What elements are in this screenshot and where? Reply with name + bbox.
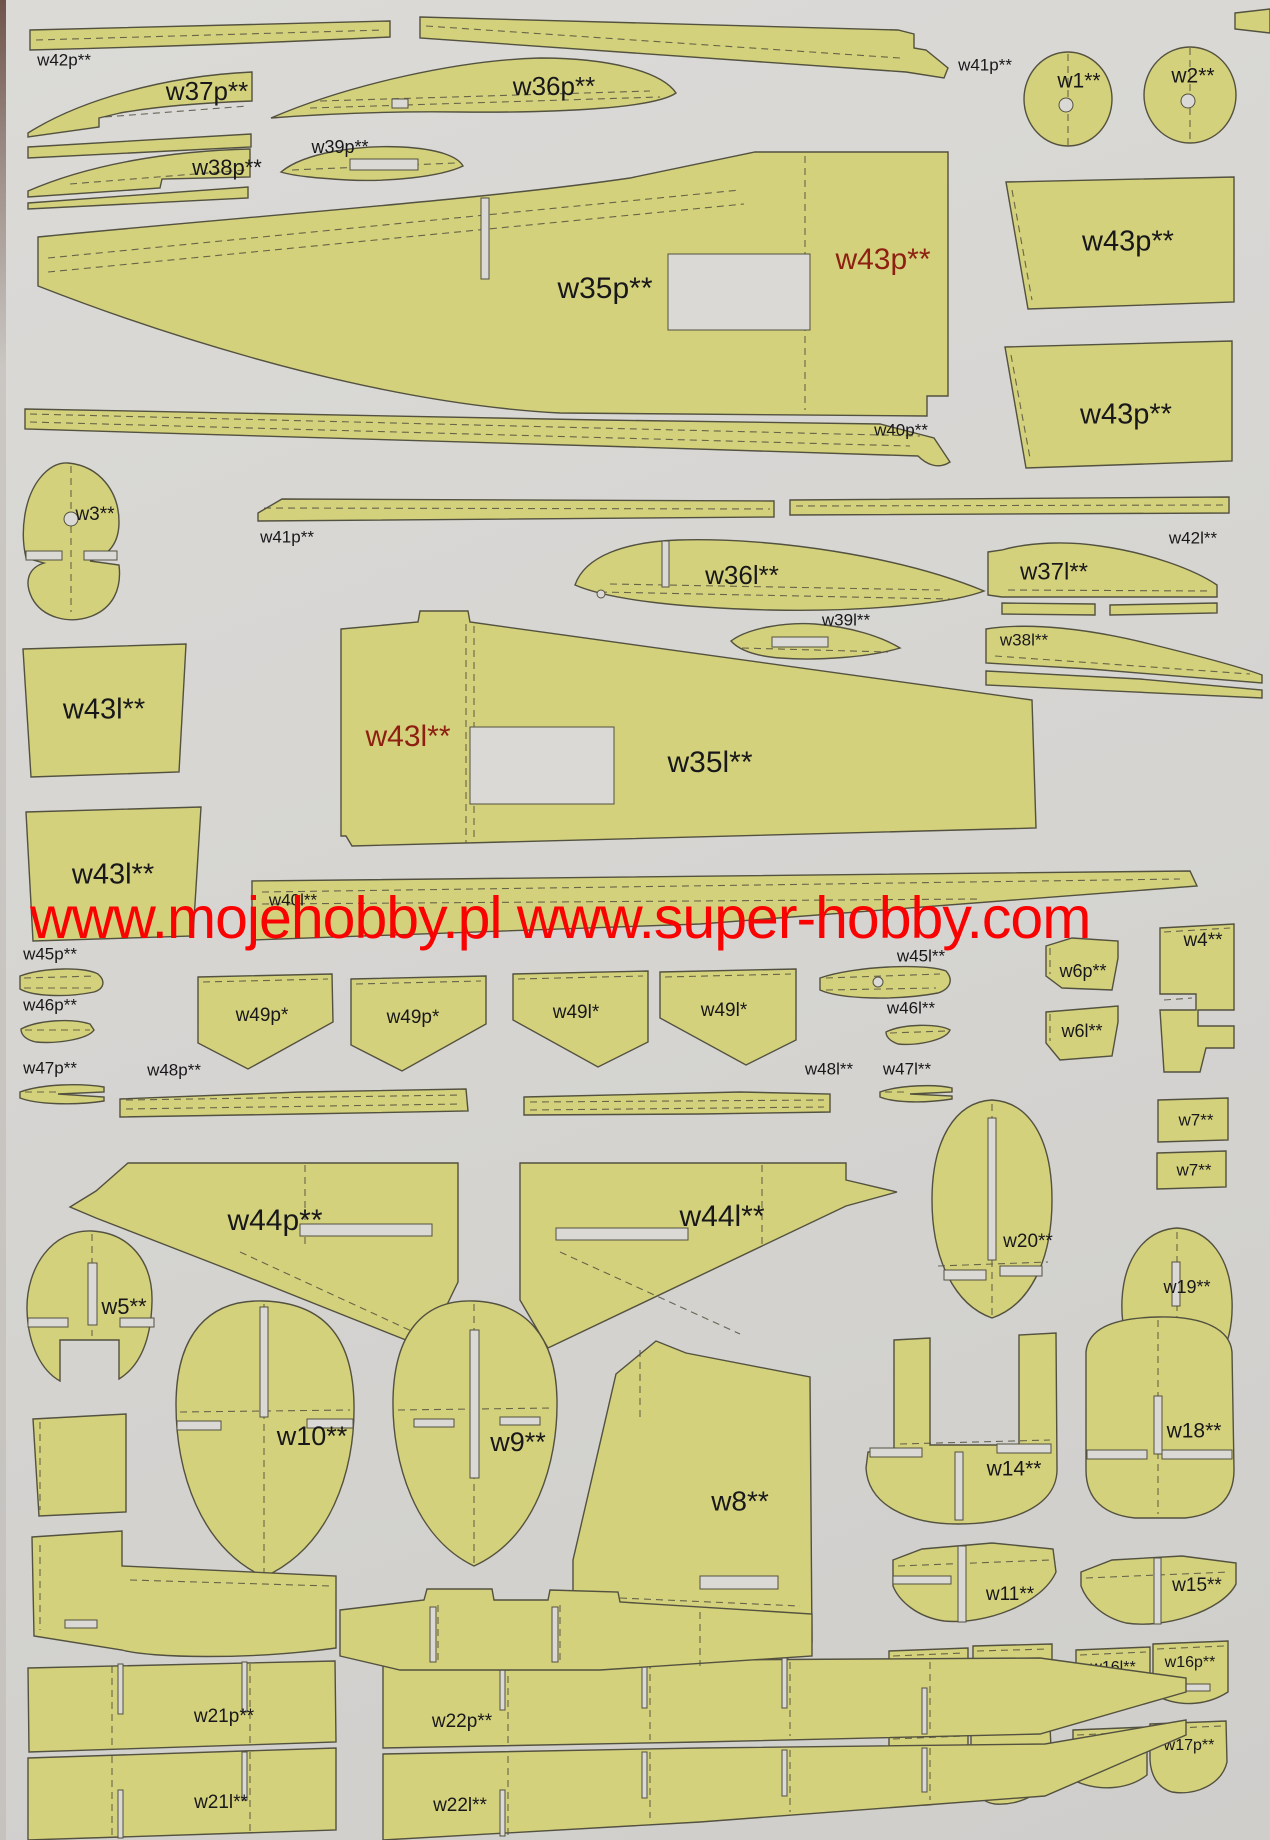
part-label-w49l-2: w49l* [700,1000,748,1021]
part-w2-disc: w2** [1144,47,1236,143]
part-label-w48p-strip: w48p** [146,1060,201,1079]
part-w46l-pod: w46l** [886,998,950,1044]
part-w39l-airfoil: w39l** [731,610,900,659]
part-w44l-wing: w44l** [520,1163,897,1348]
part-label-w47l-pod: w47l** [882,1059,932,1078]
part-w39p-airfoil: w39p** [281,137,463,181]
part-tail-plate [33,1414,126,1516]
part-label-w42l-strip: w42l** [1168,528,1218,547]
part-w48l-strip: w48l** [524,1059,853,1115]
part-label-w20-former: w20** [1002,1231,1053,1252]
part-label-w6p-plate: w6p** [1058,961,1106,981]
part-label-w21p-band: w21p** [193,1706,255,1727]
part-label-w43p-panel-1: w43p** [1081,226,1174,258]
part-w42l-strip: w42l** [790,497,1229,547]
part-w5-former: w5** [27,1231,154,1381]
part-w9-former: w9** [393,1301,557,1566]
part-w46p-pod: w46p** [21,995,94,1042]
part-w1-disc: w1** [1024,52,1112,146]
part-w6l-plate: w6l** [1046,1006,1118,1060]
part-label-w49l-1: w49l* [552,1002,600,1023]
part-label-w6l-plate: w6l** [1060,1021,1102,1041]
part-w36l-airfoil: w36l** [575,540,984,611]
watermark-text: www.mojehobby.pl www.super-hobby.com [30,884,1270,952]
part-w43l-red-label: w43l** [364,720,450,753]
part-w10-former: w10** [176,1301,354,1577]
part-label-w38p-airfoil: w38p** [191,155,262,180]
part-label-w35p-panel: w35p** [556,272,652,305]
part-w40p-strip: w40p** [25,409,950,466]
part-w45l-pod: w45l** [820,946,950,998]
part-label-w44p-wing: w44p** [226,1204,322,1237]
part-w49p-1: w49p* [198,974,333,1069]
part-label-w11-former: w11** [985,1584,1035,1605]
part-label-w49p-1: w49p* [235,1005,289,1026]
part-w47p-pod: w47p** [20,1058,104,1103]
part-w43p-panel-1: w43p** [1006,177,1234,309]
part-label-w40p-strip: w40p** [873,420,928,439]
part-label-w49p-2: w49p* [386,1007,440,1028]
part-label-w42p-strip: w42p** [36,50,91,69]
part-label-w15-former: w15** [1171,1575,1222,1596]
part-w37p-airfoil: w37p** [28,72,252,137]
part-label-w43l-red-label: w43l** [364,720,450,753]
scan-edge-shadow [0,0,6,1840]
part-w43p-panel-2: w43p** [1005,341,1232,468]
part-label-w43p-red-label: w43p** [834,243,930,276]
part-label-w38l-airfoil: w38l** [999,630,1049,649]
part-label-w44l-wing: w44l** [678,1200,764,1233]
part-label-w39l-airfoil: w39l** [821,610,871,629]
part-label-w46p-pod: w46p** [22,995,77,1014]
part-label-w10-former: w10** [276,1421,348,1451]
part-label-w37l-airfoil: w37l** [1019,558,1088,585]
part-w37l-strip-a [1002,603,1095,615]
part-label-w22l-band: w22l** [432,1795,487,1816]
part-label-w5-former: w5** [100,1294,147,1319]
part-label-w37p-airfoil: w37p** [165,76,248,106]
part-w49l-2: w49l* [660,969,796,1065]
part-w48p-strip: w48p** [120,1060,468,1117]
part-label-w2-disc: w2** [1170,65,1214,88]
part-label-w35l-panel: w35l** [666,746,752,779]
part-w7-plate-2: w7** [1157,1151,1226,1189]
part-label-w3-former: w3** [74,504,115,525]
part-w49l-1: w49l* [513,971,648,1067]
part-w15-former: w15** [1081,1556,1236,1624]
part-label-w9-former: w9** [489,1427,546,1457]
part-w3-former: w3** [23,463,119,620]
part-w7-plate-1: w7** [1158,1098,1228,1142]
part-label-w14-former: w14** [986,1458,1042,1481]
part-label-w48l-strip: w48l** [804,1059,854,1078]
part-w36p-airfoil: w36p** [271,58,676,118]
part-w43l-panel-1: w43l** [23,644,186,777]
part-label-w47p-pod: w47p** [22,1058,77,1077]
part-label-w21l-band: w21l** [193,1792,248,1813]
part-label-w43p-panel-2: w43p** [1079,399,1172,431]
part-w21l-band: w21l** [28,1748,336,1840]
part-label-w7-plate-2: w7** [1176,1160,1212,1179]
part-w49p-2: w49p* [351,976,486,1071]
part-label-w41p-strip-2: w41p** [259,527,314,546]
part-strip-fragment-top-right [1235,9,1270,33]
part-label-w7-plate-1: w7** [1178,1110,1214,1129]
part-w37l-strip-b [1110,603,1217,615]
part-label-w39p-airfoil: w39p** [310,137,368,157]
part-w21p-band: w21p** [28,1661,336,1752]
part-label-w18-former: w18** [1166,1420,1222,1443]
part-label-w8-former: w8** [710,1485,769,1516]
part-w45p-pod: w45p** [20,944,103,995]
part-w47l-pod: w47l** [880,1059,952,1101]
part-label-w36l-airfoil: w36l** [704,560,779,590]
part-w20-former: w20** [932,1100,1053,1318]
part-w14-former: w14** [866,1333,1057,1524]
part-label-w22p-band: w22p** [431,1711,493,1732]
part-w22p-band: w22p** [383,1658,1186,1748]
part-w43p-red-label: w43p** [834,243,930,276]
part-label-w43l-panel-1: w43l** [62,694,145,726]
part-label-w36p-airfoil: w36p** [512,71,595,101]
part-w35p-panel: w35p** [38,152,948,416]
part-label-w41p-strip-top: w41p** [957,55,1012,74]
part-w42p-strip: w42p** [30,21,390,69]
part-w37l-airfoil: w37l** [988,543,1217,597]
part-label-w46l-pod: w46l** [886,998,936,1017]
part-w11-former: w11** [893,1543,1056,1622]
part-label-w19-former: w19** [1162,1277,1210,1297]
part-label-w1-disc: w1** [1056,70,1100,93]
part-label-w16p-former: w16p** [1164,1654,1216,1671]
part-w18-former: w18** [1086,1317,1234,1518]
